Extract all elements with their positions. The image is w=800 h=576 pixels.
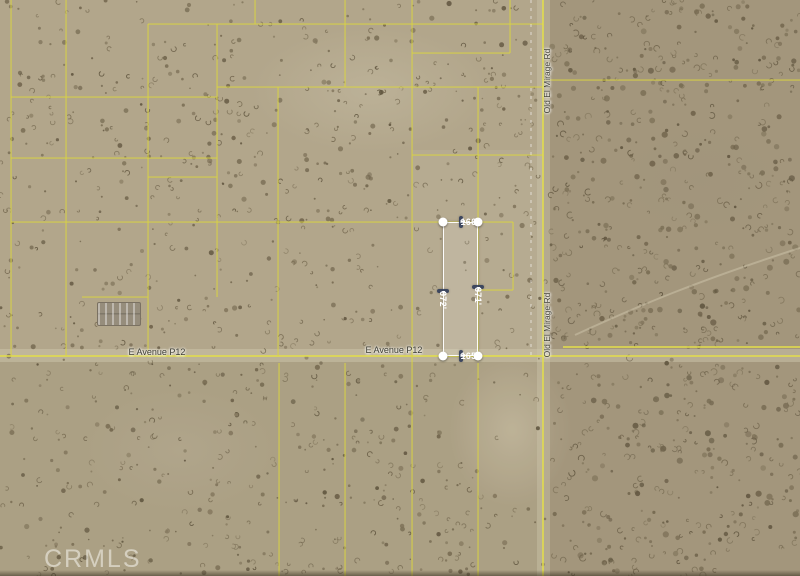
satellite-map-photo: E Avenue P12 E Avenue P12 Old El Mirage … [0, 0, 800, 576]
road-line [563, 346, 800, 348]
bottom-shade [0, 570, 800, 576]
parcel-boundary-line [148, 177, 217, 178]
parcel-boundary-line [11, 158, 217, 159]
parcel-boundary-line [510, 0, 511, 53]
road-label-old-el-mirage-rd: Old El Mirage Rd [542, 293, 552, 358]
dimension-arrow-right-icon: ► [472, 287, 484, 292]
parcel-boundary-line [412, 0, 413, 576]
parcel-boundary-line [217, 24, 218, 297]
parcel-boundary-line [255, 0, 256, 24]
road-line [0, 355, 800, 357]
parcel-grid-lines [0, 0, 800, 576]
road-label-old-el-mirage-rd: Old El Mirage Rd [542, 49, 552, 114]
parcel-boundary-line [82, 297, 148, 298]
small-structure [97, 302, 141, 326]
parcel-boundary-line [478, 87, 479, 222]
dimension-label-right: ◄ 671' ► [472, 285, 484, 289]
parcel-boundary-line [11, 97, 217, 98]
dimension-label-top: ◄ 166' ► [459, 216, 463, 228]
parcel-corner-handle [439, 352, 448, 361]
parcel-boundary-line [217, 87, 543, 88]
parcel-boundary-line [478, 363, 479, 576]
parcel-boundary-line [412, 53, 510, 54]
dimension-arrow-right-icon: ► [437, 291, 449, 296]
parcel-corner-handle [439, 218, 448, 227]
parcel-boundary-line [543, 80, 800, 81]
parcel-boundary-line [513, 222, 514, 290]
dimension-label-left: ◄ 672' ► [437, 289, 449, 293]
road-label-e-avenue-p12: E Avenue P12 [366, 345, 423, 355]
parcel-boundary-line [11, 0, 12, 356]
dimension-arrow-right-icon: ► [461, 216, 466, 228]
road-label-e-avenue-p12: E Avenue P12 [129, 347, 186, 357]
parcel-boundary-line [148, 24, 149, 356]
parcel-boundary-line [279, 363, 280, 576]
parcel-boundary-line [66, 0, 67, 356]
dimension-label-bottom: ◄ 165' ► [459, 350, 463, 362]
dirt-track [575, 248, 800, 335]
parcel-boundary-line [345, 363, 346, 576]
parcel-boundary-line [278, 87, 279, 356]
parcel-boundary-line [345, 0, 346, 87]
dimension-arrow-right-icon: ► [461, 350, 466, 362]
